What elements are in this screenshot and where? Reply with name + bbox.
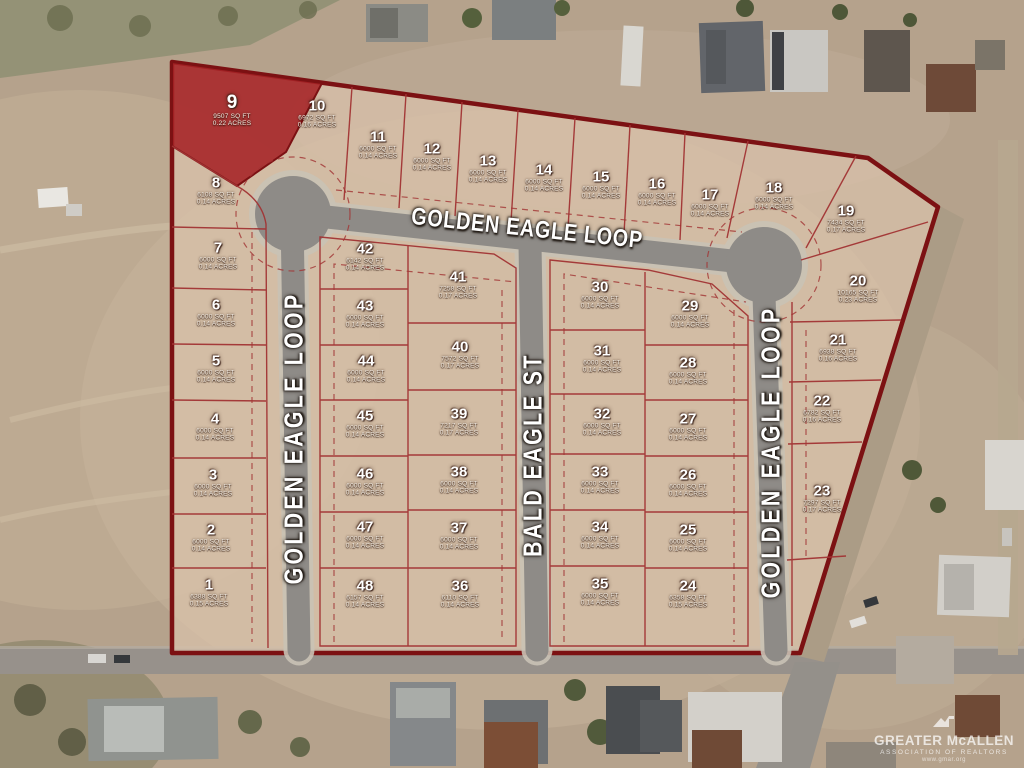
aerial-plat-svg (0, 0, 1024, 768)
plat-map: GOLDEN EAGLE LOOPGOLDEN EAGLE LOOPBALD E… (0, 0, 1024, 768)
